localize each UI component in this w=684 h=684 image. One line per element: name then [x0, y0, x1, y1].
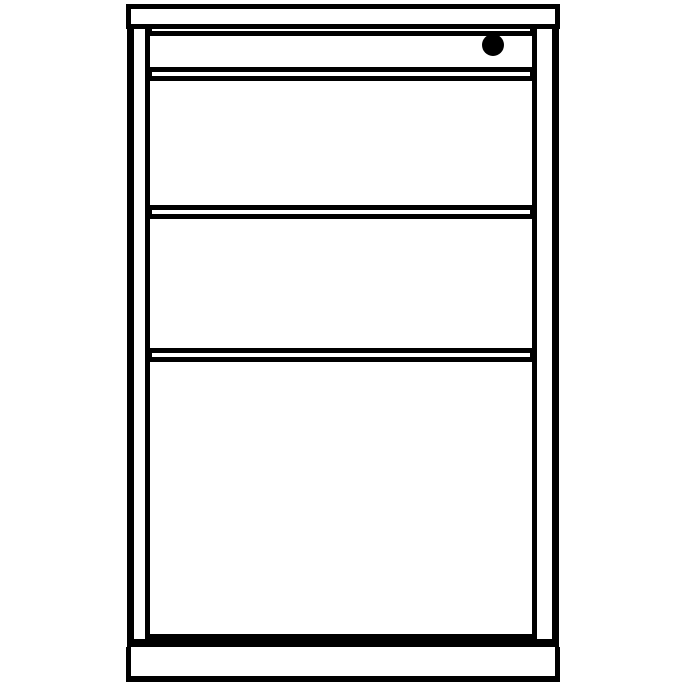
cabinet-top-cap — [126, 4, 560, 29]
drawer-front-3-file — [145, 357, 537, 639]
lock-strip — [145, 31, 537, 72]
lock-icon — [482, 34, 504, 56]
cabinet-bottom-rail — [134, 639, 552, 647]
cabinet-illustration — [0, 0, 684, 684]
drawer-front-2 — [145, 214, 537, 353]
drawer-front-1 — [145, 76, 537, 210]
cabinet-left-side-panel — [127, 28, 134, 682]
cabinet-right-side-panel — [552, 28, 559, 682]
plinth-base — [126, 647, 560, 682]
